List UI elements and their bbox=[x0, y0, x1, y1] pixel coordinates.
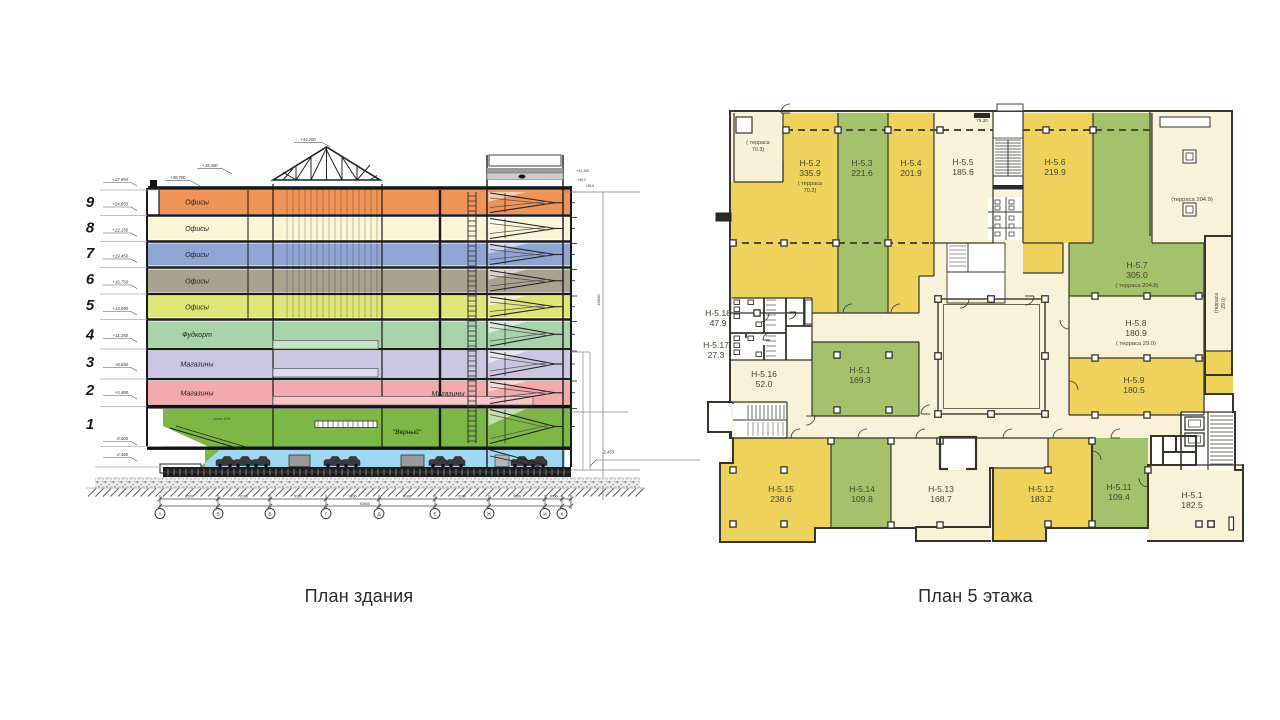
svg-text:180.9: 180.9 bbox=[1125, 328, 1147, 338]
svg-text:Н-5.15: Н-5.15 bbox=[768, 484, 794, 494]
svg-text:+16,750: +16,750 bbox=[112, 280, 128, 285]
svg-text:2: 2 bbox=[85, 382, 95, 399]
svg-text:В: В bbox=[268, 512, 271, 517]
svg-text:План 5 этажа: План 5 этажа bbox=[918, 586, 1033, 606]
svg-text:Н-5.4: Н-5.4 bbox=[900, 158, 921, 168]
svg-text:Б: Б bbox=[216, 512, 219, 517]
svg-text:9100: 9100 bbox=[349, 495, 357, 499]
svg-text:Н-5.3: Н-5.3 bbox=[851, 158, 872, 168]
svg-text:Офисы: Офисы bbox=[185, 304, 210, 311]
svg-text:-2,450: -2,450 bbox=[602, 450, 615, 455]
svg-text:+40,2: +40,2 bbox=[577, 178, 586, 182]
svg-text:Офисы: Офисы bbox=[185, 200, 210, 207]
svg-text:Н-5.13: Н-5.13 bbox=[928, 484, 954, 494]
svg-text:План здания: План здания bbox=[305, 586, 414, 606]
svg-text:+19,450: +19,450 bbox=[112, 254, 128, 259]
svg-text:Офисы: Офисы bbox=[185, 226, 210, 233]
svg-text:305.0: 305.0 bbox=[1126, 270, 1148, 280]
svg-text:182.5: 182.5 bbox=[1181, 500, 1203, 510]
svg-text:( терраса 29.0): ( терраса 29.0) bbox=[1116, 341, 1156, 347]
svg-text:79.30: 79.30 bbox=[976, 118, 988, 123]
svg-text:9100: 9100 bbox=[513, 495, 521, 499]
svg-text:Н-5.1: Н-5.1 bbox=[1181, 490, 1202, 500]
svg-text:183.2: 183.2 bbox=[1030, 494, 1052, 504]
svg-text:Н-5.7: Н-5.7 bbox=[1126, 260, 1147, 270]
svg-text:201.9: 201.9 bbox=[900, 168, 922, 178]
svg-text:3: 3 bbox=[86, 354, 95, 371]
svg-text:52.0: 52.0 bbox=[756, 379, 773, 389]
svg-text:45600: 45600 bbox=[596, 294, 601, 306]
svg-text:-2,460: -2,460 bbox=[116, 452, 129, 457]
svg-text:9100: 9100 bbox=[185, 495, 193, 499]
svg-text:Офисы: Офисы bbox=[185, 278, 210, 285]
svg-text:+44,200: +44,200 bbox=[300, 137, 316, 142]
svg-text:+11,350: +11,350 bbox=[113, 333, 129, 338]
svg-text:335.9: 335.9 bbox=[799, 168, 821, 178]
svg-text:Н-5.16: Н-5.16 bbox=[751, 369, 777, 379]
svg-text:Е: Е bbox=[433, 512, 436, 517]
svg-text:70.2): 70.2) bbox=[804, 188, 817, 194]
svg-text:( терраса: ( терраса bbox=[746, 140, 769, 146]
svg-text:Н-5.2: Н-5.2 bbox=[799, 158, 820, 168]
svg-text:Н-5.5: Н-5.5 bbox=[952, 157, 973, 167]
svg-text:К: К bbox=[561, 512, 564, 517]
svg-text:+27,850: +27,850 bbox=[112, 177, 128, 182]
svg-text:185.6: 185.6 bbox=[952, 167, 974, 177]
svg-text:+41,150: +41,150 bbox=[576, 169, 589, 173]
svg-text:1: 1 bbox=[86, 416, 94, 433]
svg-text:180.5: 180.5 bbox=[1123, 385, 1145, 395]
svg-text:4: 4 bbox=[85, 327, 95, 344]
svg-text:63600: 63600 bbox=[360, 502, 370, 506]
svg-text:0,000: 0,000 bbox=[117, 436, 128, 441]
svg-text:9100: 9100 bbox=[403, 495, 411, 499]
svg-text:Н-5.8: Н-5.8 bbox=[1125, 318, 1146, 328]
svg-text:(терраса 204.9): (терраса 204.9) bbox=[1171, 197, 1213, 203]
svg-text:Офисы: Офисы bbox=[185, 252, 210, 259]
svg-text:Н-5.11: Н-5.11 bbox=[1106, 482, 1131, 492]
svg-text:47.9: 47.9 bbox=[710, 318, 727, 328]
svg-text:109.4: 109.4 bbox=[1108, 492, 1130, 502]
svg-text:169.3: 169.3 bbox=[849, 375, 871, 385]
svg-text:Н-5.14: Н-5.14 bbox=[849, 484, 875, 494]
svg-text:Магазины: Магазины bbox=[180, 390, 214, 397]
svg-text:5: 5 bbox=[86, 297, 95, 314]
svg-text:238.6: 238.6 bbox=[770, 494, 792, 504]
svg-text:Н-5.12: Н-5.12 bbox=[1028, 484, 1054, 494]
svg-text:Н-5.17: Н-5.17 bbox=[703, 340, 729, 350]
svg-text:+22,150: +22,150 bbox=[112, 228, 128, 233]
svg-text:109.8: 109.8 bbox=[851, 494, 873, 504]
svg-text:7: 7 bbox=[86, 245, 95, 262]
svg-text:+39,6: +39,6 bbox=[585, 184, 594, 188]
svg-text:70.3): 70.3) bbox=[752, 147, 764, 153]
svg-text:+24,850: +24,850 bbox=[112, 202, 128, 207]
svg-text:6: 6 bbox=[86, 271, 95, 288]
svg-text:Н-5.9: Н-5.9 bbox=[1123, 375, 1144, 385]
svg-text:+5,480: +5,480 bbox=[115, 390, 129, 395]
svg-text:Фудкорт: Фудкорт bbox=[182, 331, 212, 339]
svg-text:уклон 10%: уклон 10% bbox=[213, 417, 231, 421]
svg-text:Н-5.1: Н-5.1 bbox=[849, 365, 870, 375]
svg-text:Н-5.18: Н-5.18 bbox=[705, 308, 731, 318]
svg-text:+8,650: +8,650 bbox=[115, 362, 129, 367]
svg-text:( терраса: ( терраса bbox=[798, 181, 823, 187]
svg-text:Магазины: Магазины bbox=[180, 362, 214, 369]
svg-text:219.9: 219.9 bbox=[1044, 167, 1066, 177]
svg-text:+39,300: +39,300 bbox=[202, 163, 218, 168]
svg-text:221.6: 221.6 bbox=[851, 168, 873, 178]
svg-text:Н-5.6: Н-5.6 bbox=[1044, 157, 1065, 167]
svg-text:29.0): 29.0) bbox=[1221, 297, 1227, 309]
svg-text:8: 8 bbox=[86, 220, 95, 237]
svg-text:И: И bbox=[543, 512, 546, 517]
svg-text:9100: 9100 bbox=[240, 495, 248, 499]
svg-text:9100: 9100 bbox=[458, 495, 466, 499]
svg-text:"Верный": "Верный" bbox=[393, 428, 422, 436]
svg-text:+38,700: +38,700 bbox=[170, 175, 186, 180]
svg-text:168.7: 168.7 bbox=[930, 494, 952, 504]
svg-text:3000: 3000 bbox=[550, 495, 558, 499]
svg-text:9100: 9100 bbox=[294, 495, 302, 499]
svg-text:9: 9 bbox=[86, 194, 95, 211]
svg-text:Магазины: Магазины bbox=[431, 391, 465, 398]
svg-text:27.3: 27.3 bbox=[708, 350, 725, 360]
svg-text:+14,050: +14,050 bbox=[112, 306, 128, 311]
svg-text:( терраса 204.8): ( терраса 204.8) bbox=[1115, 283, 1158, 289]
svg-text:(терраса: (терраса bbox=[1214, 293, 1220, 314]
